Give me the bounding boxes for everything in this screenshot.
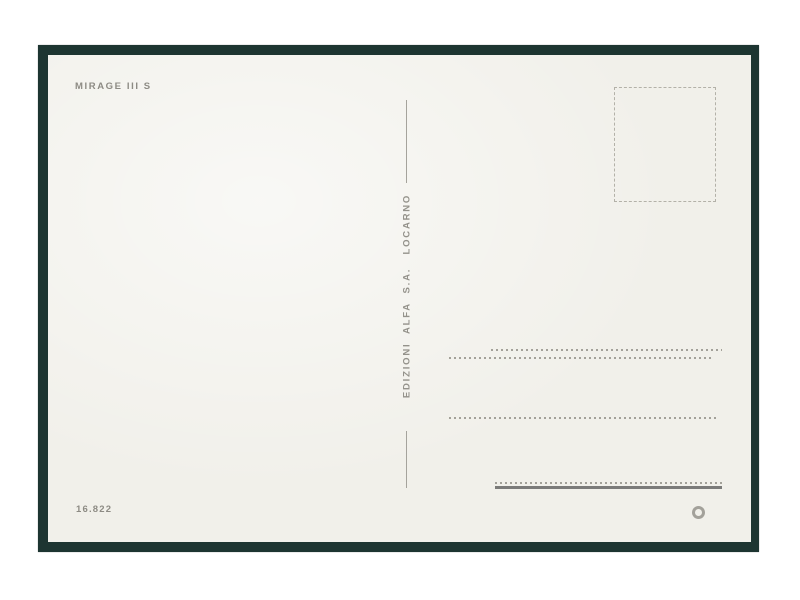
center-divider-top-rule: [406, 100, 407, 183]
postcard-back: MIRAGE III S EDIZIONI ALFA S.A. LOCARNO …: [48, 55, 751, 542]
catalog-number: 16.822: [76, 504, 112, 515]
postcard-border: MIRAGE III S EDIZIONI ALFA S.A. LOCARNO …: [38, 45, 759, 552]
address-dotted-line-4: [495, 482, 722, 484]
address-dotted-line-1: [491, 349, 722, 351]
address-dotted-line-3: [449, 417, 718, 419]
address-dotted-line-2: [449, 357, 713, 359]
center-divider-bottom-rule: [406, 431, 407, 488]
stamp-box: [614, 87, 716, 202]
bottom-solid-rule: [495, 486, 722, 489]
copyright-icon: [692, 506, 705, 519]
caption-title: MIRAGE III S: [75, 81, 152, 92]
publisher-imprint: EDIZIONI ALFA S.A. LOCARNO: [402, 194, 413, 398]
scan-background: MIRAGE III S EDIZIONI ALFA S.A. LOCARNO …: [0, 0, 800, 600]
